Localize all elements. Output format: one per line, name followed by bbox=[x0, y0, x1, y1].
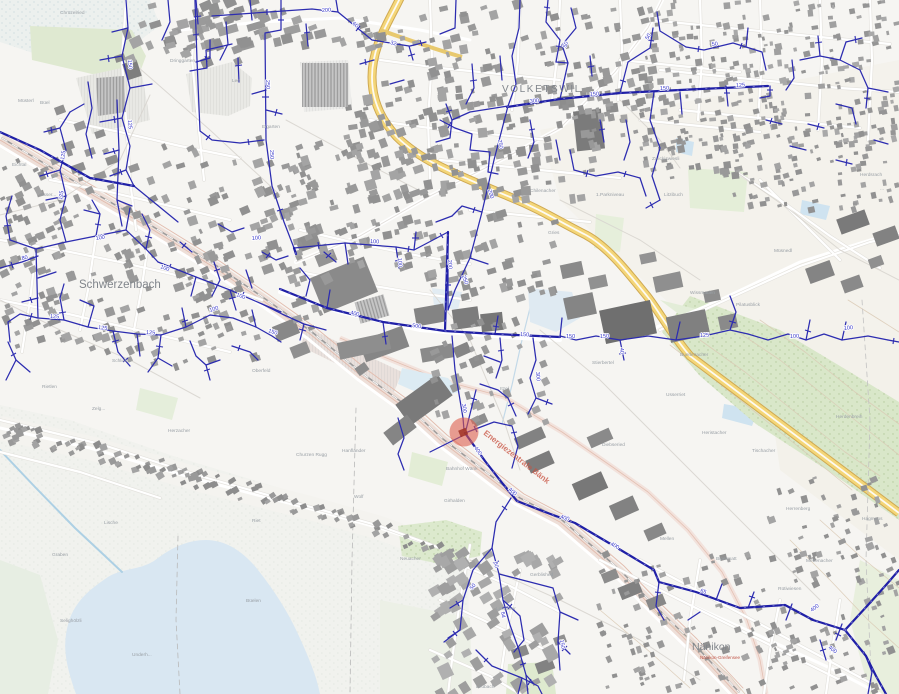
svg-text:Gries: Gries bbox=[548, 230, 560, 236]
svg-text:...: ... bbox=[880, 187, 884, 192]
svg-text:Pilatusblick: Pilatusblick bbox=[736, 302, 761, 308]
svg-text:200: 200 bbox=[446, 260, 453, 270]
svg-text:80: 80 bbox=[21, 255, 28, 262]
svg-text:Selighölzli: Selighölzli bbox=[60, 618, 82, 624]
svg-text:Leubach: Leubach bbox=[476, 684, 495, 690]
svg-text:100: 100 bbox=[790, 334, 799, 340]
svg-text:100: 100 bbox=[252, 235, 262, 242]
svg-text:125: 125 bbox=[98, 325, 108, 332]
svg-text:150: 150 bbox=[660, 86, 669, 92]
svg-text:Herdsrach: Herdsrach bbox=[860, 172, 882, 178]
svg-text:150: 150 bbox=[566, 334, 575, 340]
svg-text:Eigarten: Eigarten bbox=[262, 124, 280, 130]
svg-text:Herrenberg: Herrenberg bbox=[786, 506, 811, 512]
svg-text:60: 60 bbox=[492, 561, 499, 568]
svg-text:Wolf: Wolf bbox=[354, 494, 364, 500]
svg-text:Girhalden: Girhalden bbox=[444, 498, 465, 504]
svg-text:Rütiwiesen: Rütiwiesen bbox=[778, 586, 802, 592]
svg-text:Rietlen: Rietlen bbox=[42, 384, 57, 390]
svg-text:Herdenbreih: Herdenbreih bbox=[836, 414, 863, 420]
svg-text:Buelfenacher: Buelfenacher bbox=[680, 352, 709, 358]
svg-text:Müsnedl: Müsnedl bbox=[774, 248, 792, 254]
svg-text:200: 200 bbox=[322, 8, 331, 14]
svg-text:500: 500 bbox=[412, 323, 422, 330]
svg-text:Bipermatt: Bipermatt bbox=[716, 556, 737, 562]
svg-text:Heristacher: Heristacher bbox=[702, 430, 727, 436]
svg-text:Mellen: Mellen bbox=[660, 536, 674, 542]
svg-text:125: 125 bbox=[126, 120, 133, 130]
svg-text:40: 40 bbox=[618, 348, 625, 355]
svg-text:100: 100 bbox=[844, 325, 854, 332]
svg-text:100: 100 bbox=[370, 239, 379, 245]
svg-text:Chilenacher: Chilenacher bbox=[530, 188, 556, 194]
svg-text:Usserriet: Usserriet bbox=[666, 392, 686, 398]
svg-text:150: 150 bbox=[590, 91, 600, 98]
svg-text:Diebseried: Diebseried bbox=[602, 442, 625, 448]
svg-text:Litzibuch: Litzibuch bbox=[664, 192, 683, 198]
svg-text:Wissmaden: Wissmaden bbox=[690, 290, 715, 296]
svg-text:125: 125 bbox=[736, 83, 745, 89]
svg-text:Büelen: Büelen bbox=[246, 598, 261, 604]
svg-text:Dringgarten: Dringgarten bbox=[170, 58, 195, 64]
svg-text:Zelg...: Zelg... bbox=[92, 406, 105, 412]
svg-text:Bahnhof Wänk: Bahnhof Wänk bbox=[446, 466, 478, 472]
svg-text:Graben: Graben bbox=[52, 552, 68, 558]
svg-text:Underh...: Underh... bbox=[132, 652, 152, 658]
svg-text:Churzen Rugg: Churzen Rugg bbox=[296, 452, 327, 458]
svg-text:150: 150 bbox=[520, 332, 529, 338]
svg-text:300: 300 bbox=[534, 372, 541, 382]
svg-text:Neuacher: Neuacher bbox=[400, 556, 421, 562]
svg-text:250: 250 bbox=[264, 80, 270, 89]
svg-text:Schwerzenbach: Schwerzenbach bbox=[79, 279, 161, 291]
svg-text:Hagmoos: Hagmoos bbox=[862, 516, 883, 522]
svg-text:Leeacker: Leeacker bbox=[496, 606, 516, 612]
svg-text:150: 150 bbox=[126, 60, 133, 70]
svg-text:Herzacher: Herzacher bbox=[168, 428, 191, 434]
svg-text:Tischacher: Tischacher bbox=[752, 448, 776, 454]
svg-text:Schlissel: Schlissel bbox=[112, 358, 131, 364]
svg-text:Nänikon-Greifensee: Nänikon-Greifensee bbox=[700, 655, 741, 660]
svg-text:300: 300 bbox=[530, 98, 540, 105]
svg-text:Stierbertel: Stierbertel bbox=[592, 360, 614, 366]
svg-text:Oberfeld: Oberfeld bbox=[252, 368, 271, 374]
svg-text:Usser...: Usser... bbox=[40, 192, 56, 198]
svg-text:250: 250 bbox=[268, 150, 274, 159]
svg-text:Gerblished: Gerblished bbox=[530, 572, 554, 578]
svg-text:Eichtal: Eichtal bbox=[12, 162, 26, 168]
svg-text:Chrüzelried: Chrüzelried bbox=[60, 10, 85, 16]
svg-text:Hanfländer: Hanfländer bbox=[342, 448, 366, 454]
svg-text:1.Parkniveau: 1.Parkniveau bbox=[596, 192, 624, 198]
svg-text:Lische: Lische bbox=[104, 520, 118, 526]
svg-text:125: 125 bbox=[146, 330, 155, 336]
svg-text:Riet: Riet bbox=[252, 518, 261, 524]
svg-text:150: 150 bbox=[600, 334, 609, 340]
svg-text:100: 100 bbox=[396, 258, 403, 268]
svg-text:50: 50 bbox=[711, 41, 718, 48]
svg-text:Müsterl: Müsterl bbox=[18, 98, 34, 104]
svg-text:125: 125 bbox=[700, 333, 709, 339]
svg-text:VOLKETSWIL: VOLKETSWIL bbox=[502, 84, 582, 95]
svg-text:125: 125 bbox=[50, 314, 59, 320]
svg-text:Lee: Lee bbox=[232, 78, 240, 84]
svg-text:64: 64 bbox=[499, 611, 506, 618]
svg-text:Büel: Büel bbox=[40, 100, 50, 106]
svg-text:Nänikon: Nänikon bbox=[692, 641, 731, 653]
svg-text:Mettenacher: Mettenacher bbox=[806, 558, 833, 564]
svg-text:Itzel: Itzel bbox=[500, 386, 509, 392]
svg-text:Zwickiswiesli: Zwickiswiesli bbox=[652, 156, 679, 162]
